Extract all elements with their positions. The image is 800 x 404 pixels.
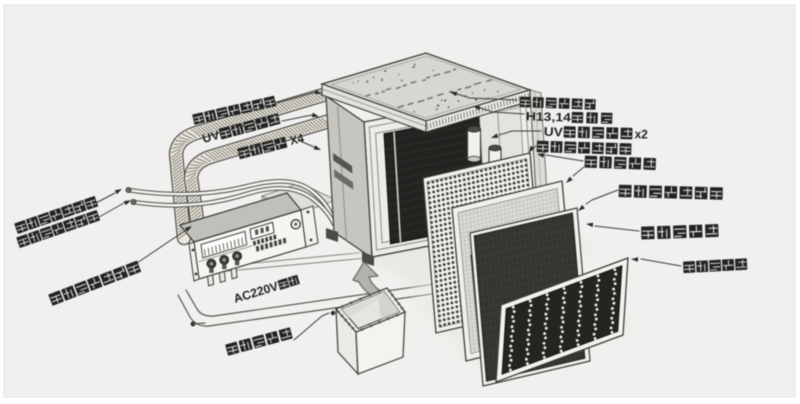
svg-text:UV: UV <box>544 125 564 140</box>
svg-text:H13,14: H13,14 <box>526 109 572 124</box>
svg-text:x2: x2 <box>635 127 648 141</box>
